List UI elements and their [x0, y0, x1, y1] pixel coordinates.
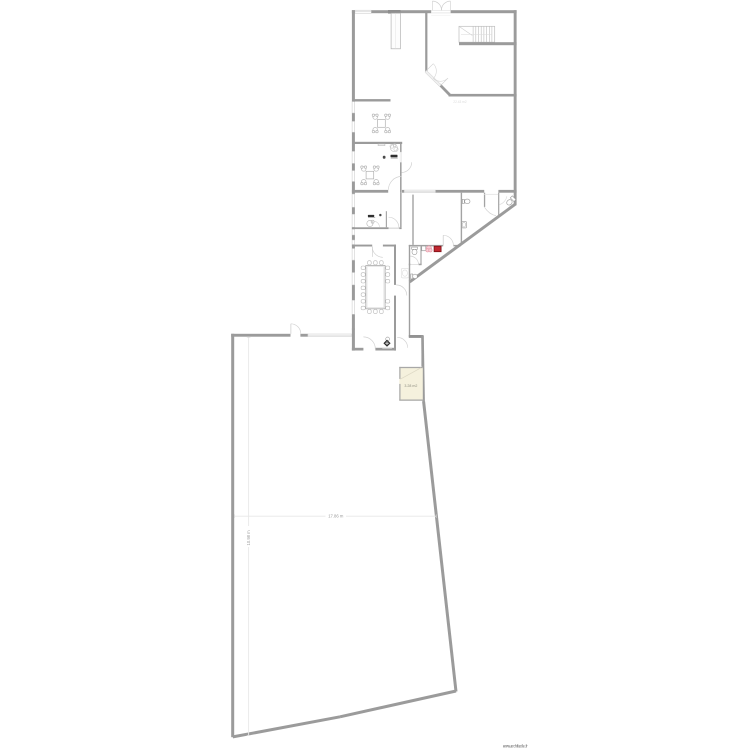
svg-text:17.86 m: 17.86 m: [328, 514, 344, 519]
svg-text:3.28 m2: 3.28 m2: [404, 384, 417, 388]
svg-text:www.archifacile.fr: www.archifacile.fr: [503, 744, 528, 749]
svg-text:22.43 m2: 22.43 m2: [453, 100, 467, 104]
svg-text:10.98 m: 10.98 m: [246, 530, 251, 546]
